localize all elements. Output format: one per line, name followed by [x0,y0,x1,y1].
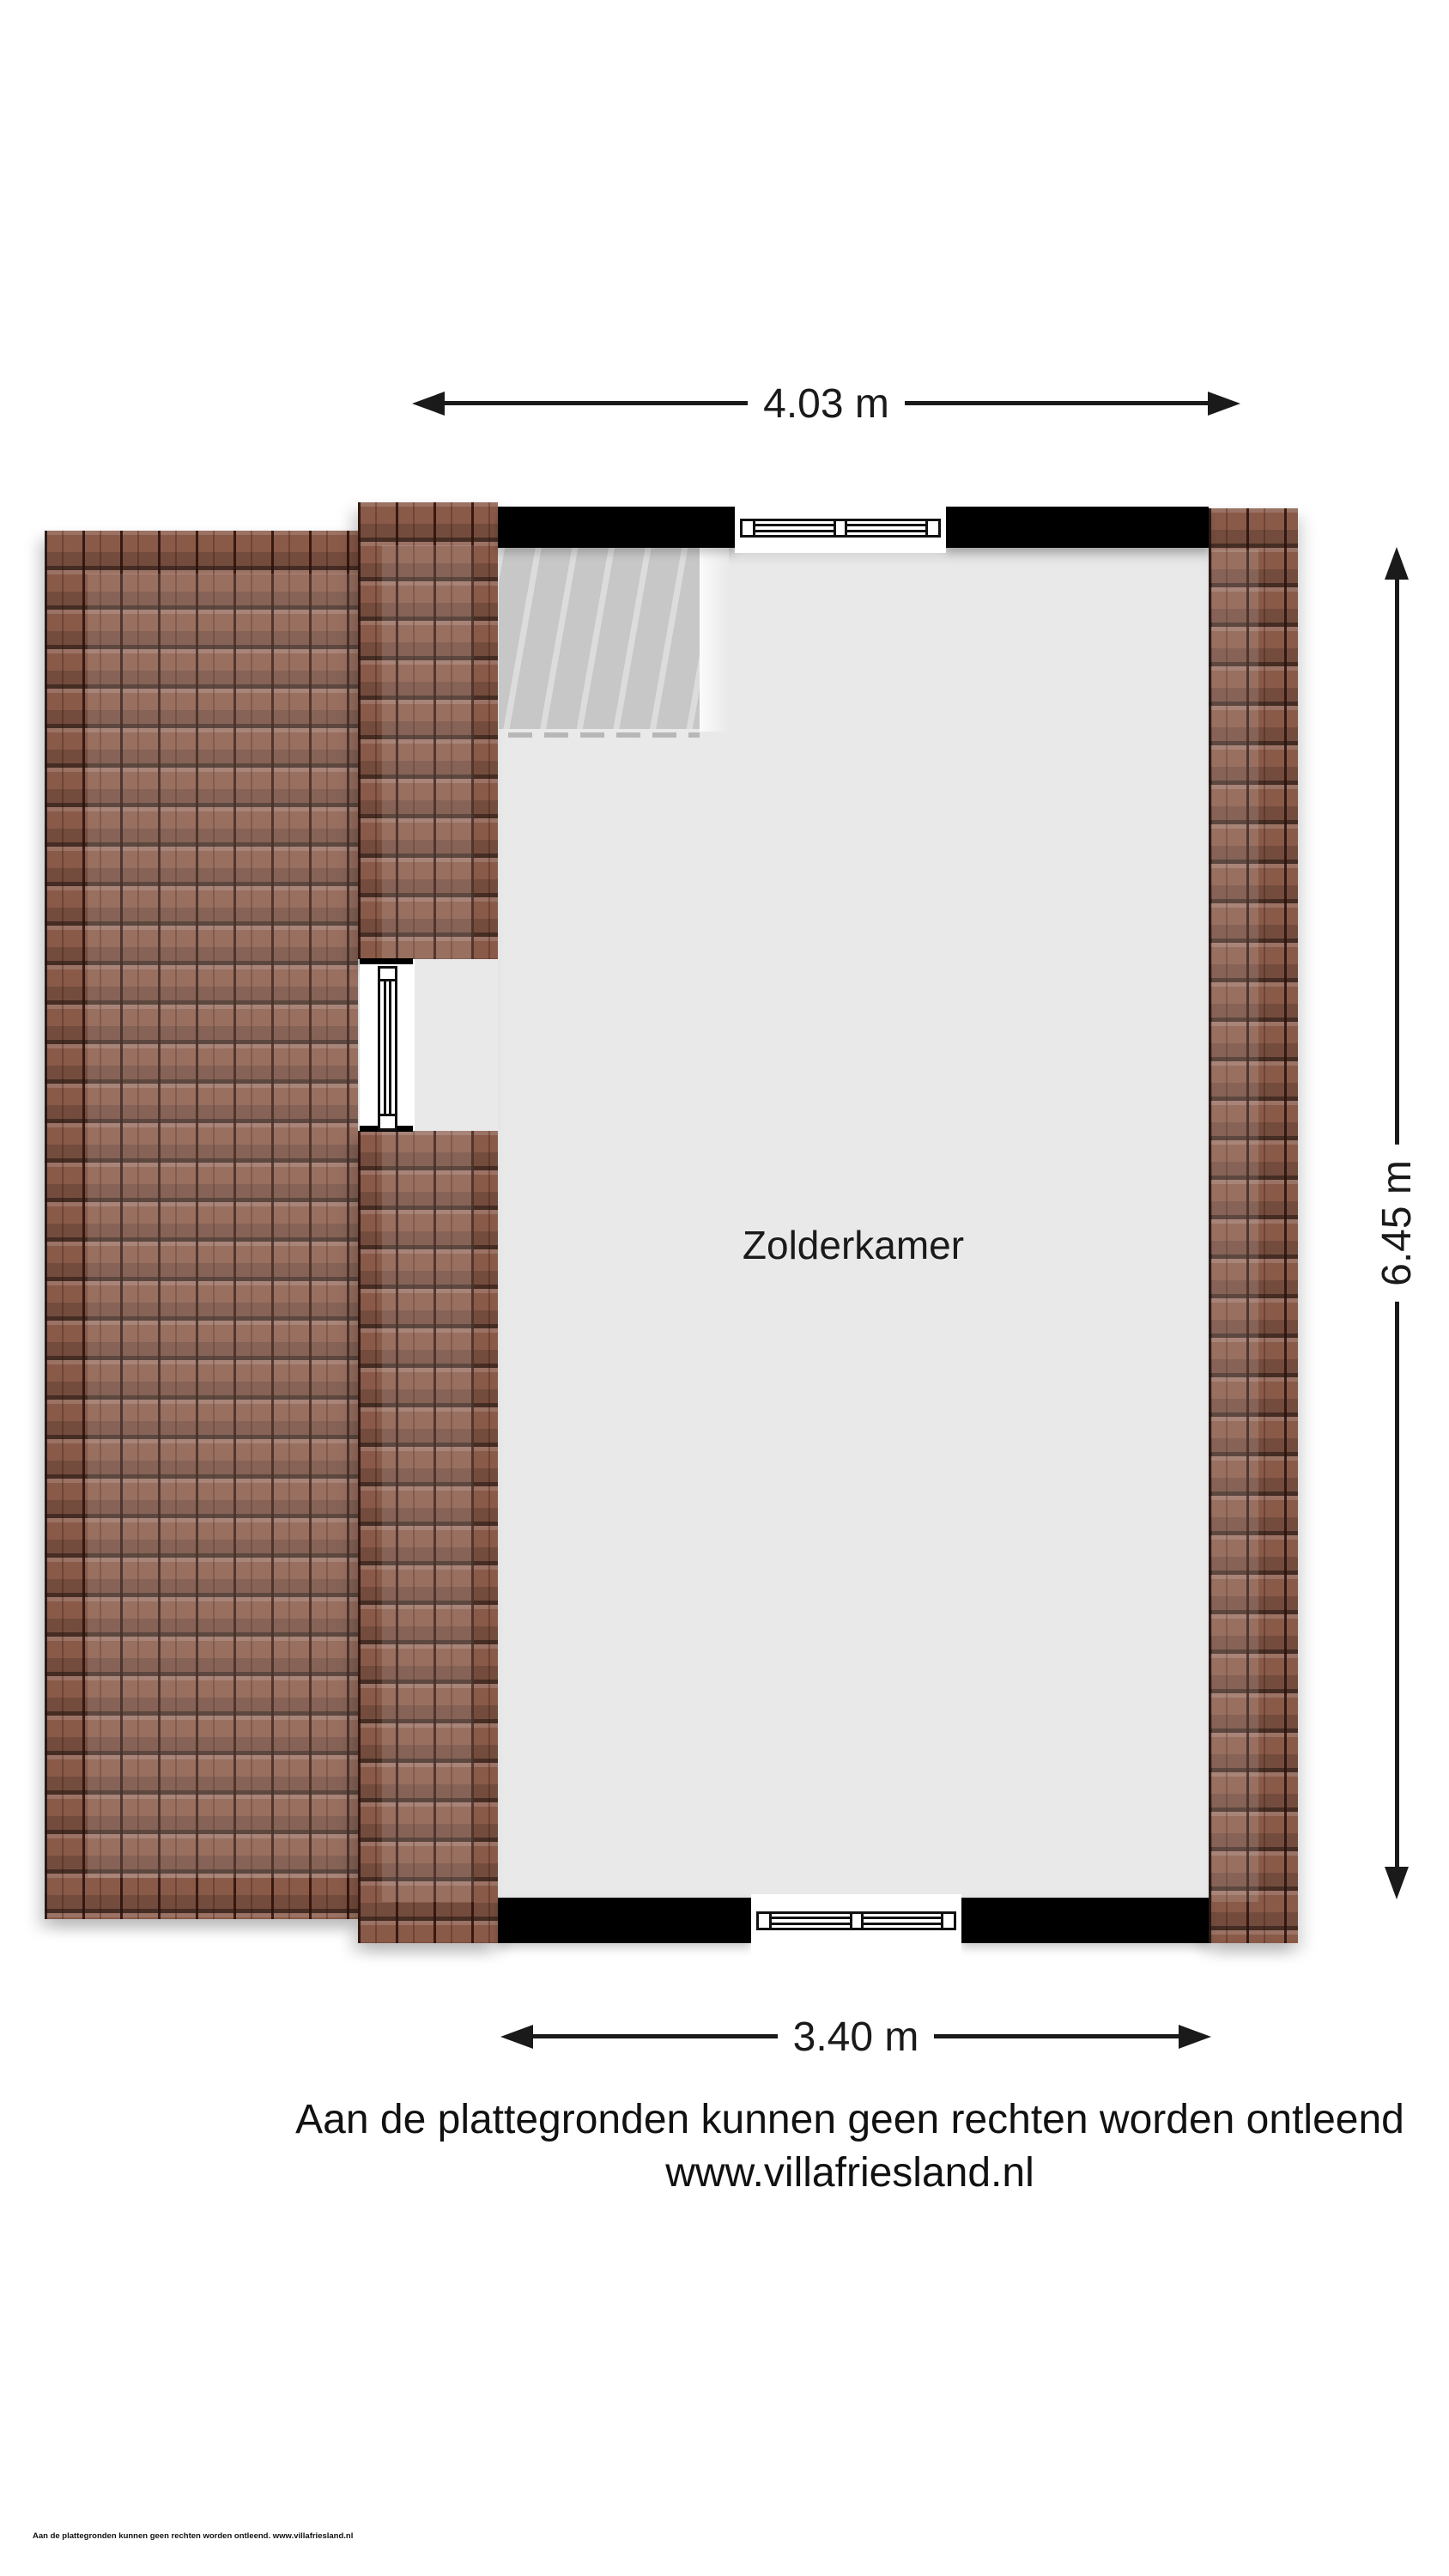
wall-top-right [946,507,1209,548]
wall-top-left [498,507,735,548]
roof-strip-right [1209,508,1298,1943]
window-frame-cap [941,1914,954,1928]
window-frame-cap [380,969,395,981]
arrow-left-icon [500,2025,533,2049]
dimension-bottom-label: 3.40 m [778,2014,935,2061]
wall-stub-top [360,958,413,964]
roof-highlight [88,574,358,1878]
staircase [499,548,700,729]
window-pane [772,1914,850,1928]
staircase-step-ticks [508,732,700,738]
arrow-left-icon [412,392,445,416]
roof-highlight [382,545,474,959]
window-frame-cap [850,1914,864,1928]
room-label: Zolderkamer [743,1222,964,1268]
window-pane [380,981,395,1114]
window-left [378,966,397,1131]
roof-strip-middle-upper [358,502,498,959]
dimension-top: 4.03 m [412,383,1240,424]
arrow-up-icon [1385,547,1409,580]
website-text: www.villafriesland.nl [295,2147,1404,2200]
roof-panel-left [45,531,358,1919]
dimension-top-label: 4.03 m [748,380,905,428]
dimension-bottom: 3.40 m [500,2016,1211,2057]
arrow-right-icon [1208,392,1240,416]
window-frame-cap [759,1914,772,1928]
arrow-down-icon [1385,1867,1409,1899]
window-bay-floor [415,959,498,1131]
wall-bottom-left [498,1898,751,1943]
roof-highlight [1212,550,1258,1902]
dimension-right-label: 6.45 m [1373,1145,1421,1302]
window-pane [847,521,925,535]
disclaimer-block: Aan de plattegronden kunnen geen rechten… [295,2093,1404,2200]
window-bottom [756,1911,956,1930]
window-frame-cap [380,1114,395,1128]
window-pane [864,1914,942,1928]
window-frame-cap [834,521,847,535]
window-top [740,519,941,538]
disclaimer-text: Aan de plattegronden kunnen geen rechten… [295,2093,1404,2147]
window-frame-cap [743,521,755,535]
wall-bottom-right [961,1898,1209,1943]
window-frame-cap [925,521,938,535]
staircase-edge-highlight [700,548,729,732]
floorplan-page: 4.03 m Zolderkamer [0,0,1449,2576]
window-pane [755,521,834,535]
fine-print: Aan de plattegronden kunnen geen rechten… [33,2531,353,2541]
attic-room-floor: Zolderkamer [498,548,1209,1898]
dimension-right: 6.45 m [1376,547,1417,1899]
roof-highlight [382,1131,474,1902]
roof-strip-middle-lower [358,1131,498,1943]
arrow-right-icon [1179,2025,1211,2049]
